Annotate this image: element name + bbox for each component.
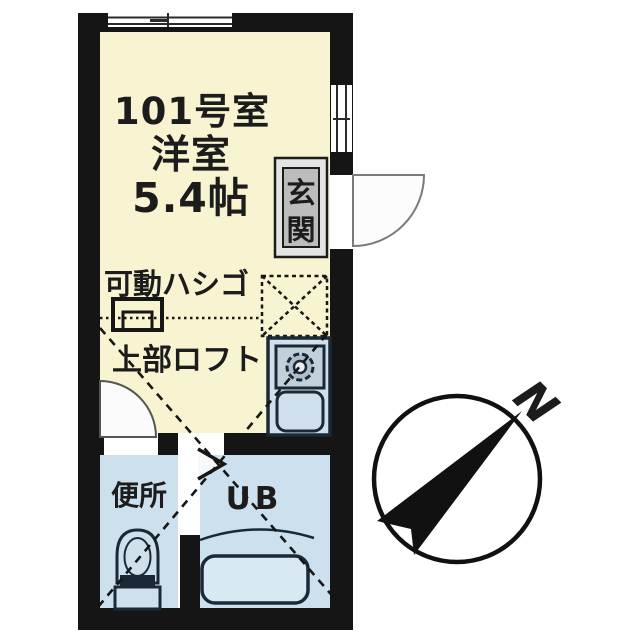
- room-area-label: 5.4帖: [132, 174, 250, 222]
- toilet-label: 便所: [111, 479, 167, 512]
- toilet-icon: [115, 530, 160, 609]
- entrance-label-char-1: 玄: [286, 176, 315, 210]
- toilet-seat-hinge: [120, 575, 155, 587]
- floor-plan-canvas: 玄 関 101号室 洋室 5.4帖 可動: [0, 0, 640, 640]
- entrance-label-box: 玄 関: [275, 158, 327, 257]
- bathtub: [202, 556, 308, 603]
- kitchen-sink: [277, 392, 323, 431]
- ub-label: UB: [226, 481, 283, 517]
- entrance-label-char-2: 関: [286, 213, 315, 247]
- ub-doorway-clearance: [178, 455, 200, 537]
- room-type-label: 洋室: [151, 133, 231, 178]
- kitchen-unit: [268, 338, 330, 435]
- wall-bottom: [78, 608, 353, 630]
- room-number-label: 101号室: [114, 90, 270, 133]
- loft-label: 上部ロフト: [112, 343, 262, 378]
- wall-left: [78, 13, 100, 630]
- floor-plan-image: 玄 関 101号室 洋室 5.4帖 可動: [0, 0, 640, 640]
- ladder-label: 可動ハシゴ: [104, 267, 249, 301]
- wall-toilet-ub-divider: [180, 535, 200, 610]
- toilet-tank: [115, 587, 160, 609]
- entrance-door-opening: [330, 175, 353, 249]
